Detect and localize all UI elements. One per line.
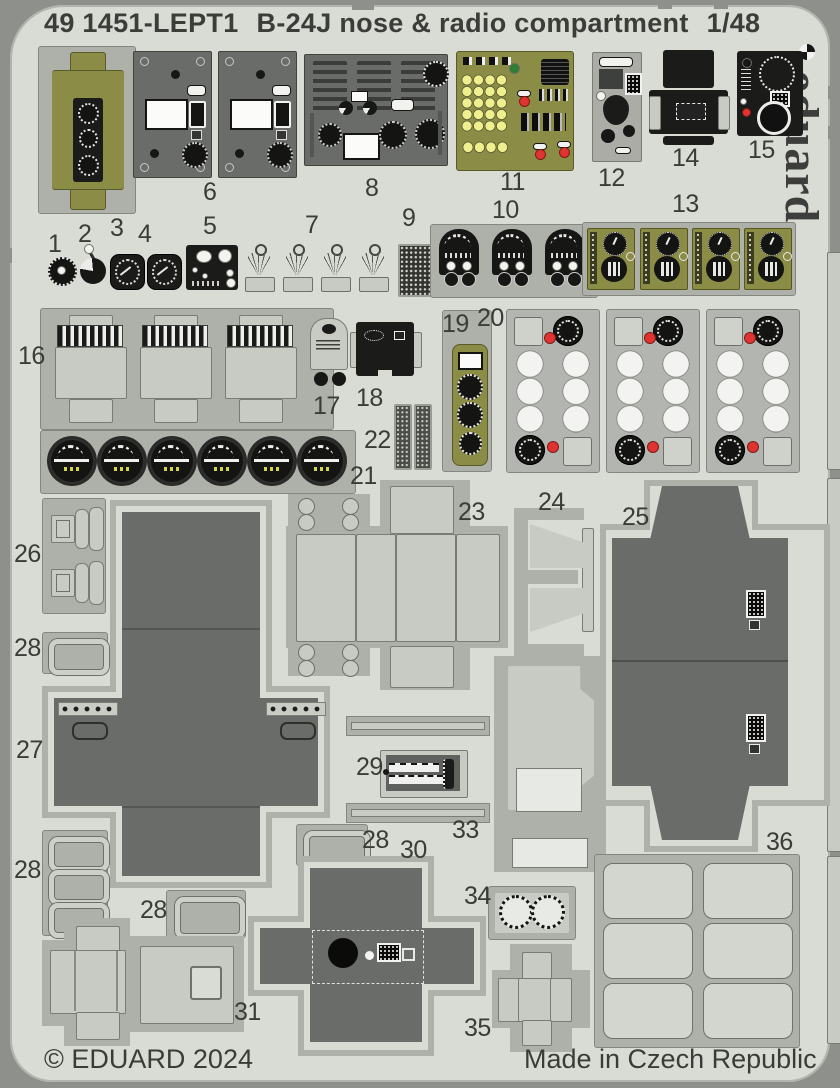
part-number-label: 34	[464, 884, 491, 909]
part-number-label: 23	[458, 500, 485, 525]
part-number-label: 28	[362, 828, 389, 853]
part-number-label: 35	[464, 1016, 491, 1041]
part-number-label: 6	[203, 180, 216, 205]
part-number-label: 5	[203, 214, 216, 239]
part-number-label: 2	[78, 222, 91, 247]
part-number-label: 16	[18, 344, 45, 369]
part-number-label: 14	[672, 146, 699, 171]
part-number-label: 33	[452, 818, 479, 843]
part-number-label: 28	[14, 858, 41, 883]
part-number-label: 3	[110, 216, 123, 241]
part-number-label: 22	[364, 428, 391, 453]
part-number-label: 1	[48, 232, 61, 257]
part-number-label: 31	[234, 1000, 261, 1025]
part-number-label: 36	[766, 830, 793, 855]
part-number-label: 24	[538, 490, 565, 515]
part-number-label: 21	[350, 464, 377, 489]
part-number-label: 19	[442, 312, 469, 337]
part-number-label: 27	[16, 738, 43, 763]
part-number-label: 9	[402, 206, 415, 231]
part-number-label: 26	[14, 542, 41, 567]
part-number-label: 18	[356, 386, 383, 411]
part-number-label: 28	[14, 636, 41, 661]
part-number-label: 15	[748, 138, 775, 163]
part-number-label: 30	[400, 838, 427, 863]
part-number-label: 10	[492, 198, 519, 223]
part-number-label: 29	[356, 755, 383, 780]
part-number-label: 11	[500, 170, 525, 195]
part-number-label: 28	[140, 898, 167, 923]
part-number-label: 12	[598, 166, 625, 191]
part-number-label: 8	[365, 176, 378, 201]
pe-fret-sheet-scan: 49 1451-LEPT1 B-24J nose & radio compart…	[0, 0, 840, 1088]
part-number-label: 7	[305, 213, 318, 238]
made-in-text: Made in Czech Republic	[524, 1046, 817, 1073]
part-number-label: 20	[477, 306, 504, 331]
part-number-label: 4	[138, 222, 151, 247]
part-number-labels: 1234567891011121314151617181920212223242…	[0, 0, 840, 1088]
part-number-label: 13	[672, 192, 699, 217]
copyright-text: © EDUARD 2024	[44, 1046, 253, 1073]
part-number-label: 25	[622, 505, 649, 530]
part-number-label: 17	[313, 394, 340, 419]
